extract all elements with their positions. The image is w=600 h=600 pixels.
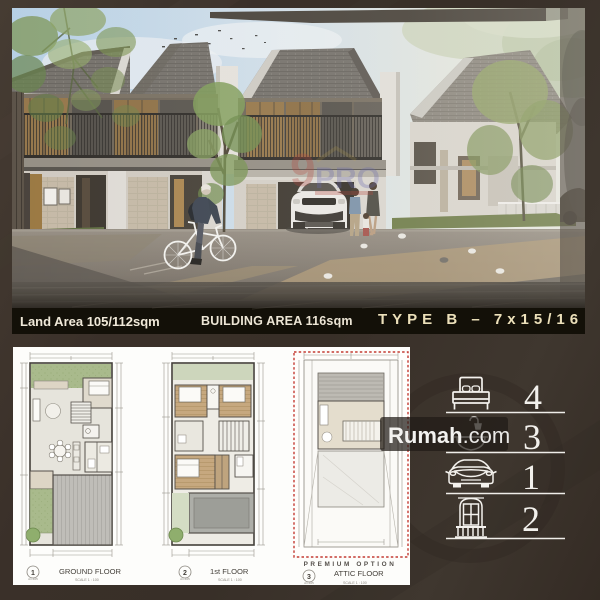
svg-text:ATTIC FLOOR: ATTIC FLOOR (334, 569, 384, 578)
svg-text:3: 3 (307, 574, 311, 581)
svg-text:2: 2 (183, 570, 187, 577)
svg-text:A1-105: A1-105 (304, 581, 314, 585)
svg-text:SCALE 1 : 100: SCALE 1 : 100 (75, 578, 99, 582)
svg-text:A1-105: A1-105 (180, 577, 190, 581)
svg-text:SCALE 1 : 100: SCALE 1 : 100 (343, 581, 367, 585)
svg-text:SCALE 1 : 100: SCALE 1 : 100 (218, 578, 242, 582)
svg-text:A1-105: A1-105 (28, 577, 38, 581)
svg-text:2: 2 (522, 499, 540, 539)
svg-text:1: 1 (31, 570, 35, 577)
svg-text:1: 1 (522, 457, 540, 497)
svg-text:PREMIUM OPTION: PREMIUM OPTION (304, 561, 397, 568)
svg-text:4: 4 (524, 377, 542, 417)
svg-text:GROUND FLOOR: GROUND FLOOR (59, 567, 122, 576)
svg-text:3: 3 (523, 417, 541, 457)
svg-text:1st FLOOR: 1st FLOOR (210, 567, 249, 576)
